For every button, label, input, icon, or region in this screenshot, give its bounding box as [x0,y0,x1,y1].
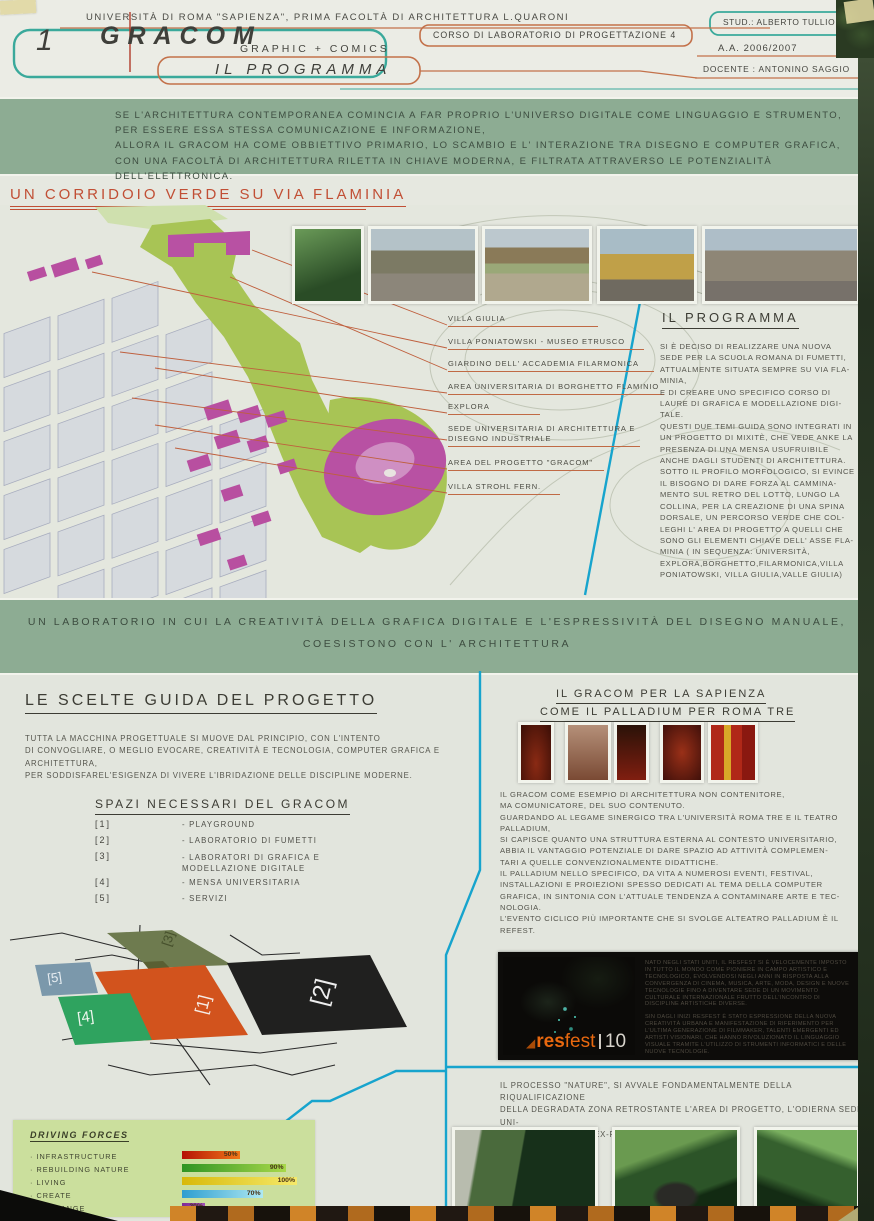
space-num-2: [2] [95,835,111,845]
photo-palladium-stage [614,722,649,783]
resfest-logo-res: res [536,1031,565,1052]
map-label-explora: EXPLORA [448,402,540,415]
year-line: A.A. 2006/2007 [718,43,798,54]
map-label-sede-univ: SEDE UNIVERSITARIA DI ARCHITETTURA E DIS… [448,424,640,447]
sapienza-body: IL GRACOM COME ESEMPIO DI ARCHITETTURA N… [500,789,868,936]
block-5-label: [5] [46,969,62,986]
df-bar-infrastructure: 50% [182,1151,240,1159]
photo-green-alley-car [612,1127,740,1218]
df-row-rebuilding-nature: · REBUILDING NATURE 90% [30,1165,130,1175]
space-label-2: - LABORATORIO DI FUMETTI [182,836,317,845]
df-row-living: · LIVING 100% [30,1178,66,1188]
background-foliage-edge [858,0,874,1221]
student-line: STUD.: ALBERTO TULLIO [723,17,835,27]
df-bar-create: 70% [182,1190,263,1198]
intro-banner: SE L'ARCHITETTURA CONTEMPORANEA COMINCIA… [0,97,874,176]
map-label-area-gracom: AREA DEL PROGETTO "GRACOM" [448,458,604,471]
course-line: CORSO DI LABORATORIO DI PROGETTAZIONE 4 [433,30,676,40]
df-bar-living: 100% [182,1177,297,1185]
program-heading: IL PROGRAMMA [662,310,799,329]
space-num-5: [5] [95,893,111,903]
page-title: IL PROGRAMMA [215,61,391,78]
program-body: SI È DECISO DI REALIZZARE UNA NUOVA SEDE… [660,341,872,581]
space-num-3: [3] [95,851,111,861]
df-bar-rebuilding-nature: 90% [182,1164,286,1172]
resfest-text-2: SIN DAGLI INIZI RESFEST È STATO ESPRESSI… [645,1014,853,1055]
panel-number: 1 [36,24,53,58]
df-row-infrastructure: · INFRASTRUCTURE 50% [30,1152,117,1162]
resfest-logo-mark-icon: ◢ [526,1036,535,1050]
lab-banner-line1: UN LABORATORIO IN CUI LA CREATIVITÀ DELL… [0,616,874,628]
space-label-1: - PLAYGROUND [182,820,255,829]
space-num-4: [4] [95,877,111,887]
photo-park-trees [292,226,364,304]
driving-forces-title: DRIVING FORCES [30,1130,129,1142]
photo-flaminia-street [702,226,860,304]
photo-green-alley-1 [452,1127,598,1218]
resfest-logo-divider [599,1034,601,1049]
background-bottom-strip [170,1206,874,1221]
tape-top-left [0,0,36,15]
map-label-poniatowski: VILLA PONIATOWSKI - MUSEO ETRUSCO [448,337,644,350]
logo-subtitle: GRAPHIC + COMICS [240,43,390,55]
driving-forces-box: DRIVING FORCES · INFRASTRUCTURE 50% · RE… [13,1120,315,1217]
map-label-villa-giulia: VILLA GIULIA [448,314,598,327]
space-label-4: - MENSA UNIVERSITARIA [182,878,301,887]
space-label-5: - SERVIZI [182,894,228,903]
map-label-strohl-fern: VILLA STROHL FERN. [448,482,560,495]
block-4-label: [4] [76,1008,95,1027]
df-row-create: · CREATE 70% [30,1191,72,1201]
photo-palladium-facade [565,722,611,783]
photo-green-alley-2 [754,1127,860,1218]
photo-palladium-columns [708,722,758,783]
space-num-1: [1] [95,819,111,829]
photo-palladium-audience [660,722,704,783]
resfest-banner: ◢resfest10 NATO NEGLI STATI UNITI, IL RE… [498,952,860,1060]
map-label-filarmonica: GIARDINO DELL' ACCADEMIA FILARMONICA [448,359,654,372]
resfest-text-1: NATO NEGLI STATI UNITI, IL RESFEST SI È … [645,960,853,1008]
photo-yellow-building [597,226,697,304]
teacher-line: DOCENTE : ANTONINO SAGGIO [703,64,850,74]
resfest-logo: ◢resfest10 [526,1031,626,1053]
corridor-heading: UN CORRIDOIO VERDE SU VIA FLAMINIA [10,186,406,207]
gracom-logo: GRACOM [100,22,262,51]
choices-body: TUTTA LA MACCHINA PROGETTUALE SI MUOVE D… [25,733,470,782]
sapienza-heading-line2: COME IL PALLADIUM PER ROMA TRE [540,706,795,722]
map-label-borghetto: AREA UNIVERSITARIA DI BORGHETTO FLAMINIO [448,382,664,395]
tape-top-right [844,0,874,24]
lab-banner-line2: COESISTONO CON L' ARCHITETTURA [0,638,874,650]
poster-photo: UNIVERSITÀ DI ROMA "SAPIENZA", PRIMA FAC… [0,0,874,1221]
photo-low-building [368,226,478,304]
choices-heading: LE SCELTE GUIDA DEL PROGETTO [25,692,377,714]
spaces-heading: SPAZI NECESSARI DEL GRACOM [95,797,350,815]
block-5 [35,962,98,996]
intro-banner-text: SE L'ARCHITETTURA CONTEMPORANEA COMINCIA… [115,108,860,184]
sapienza-heading-line1: IL GRACOM PER LA SAPIENZA [556,688,766,704]
photo-palladium-hall [518,722,554,783]
resfest-logo-fest: fest [565,1031,596,1052]
space-label-3: - LABORATORI DI GRAFICA E MODELLAZIONE D… [182,852,320,874]
photo-explora-pavilion [482,226,592,304]
spaces-diagram: [3] [5] [4] [1] [2] [0,915,460,1105]
resfest-logo-number: 10 [605,1031,626,1052]
